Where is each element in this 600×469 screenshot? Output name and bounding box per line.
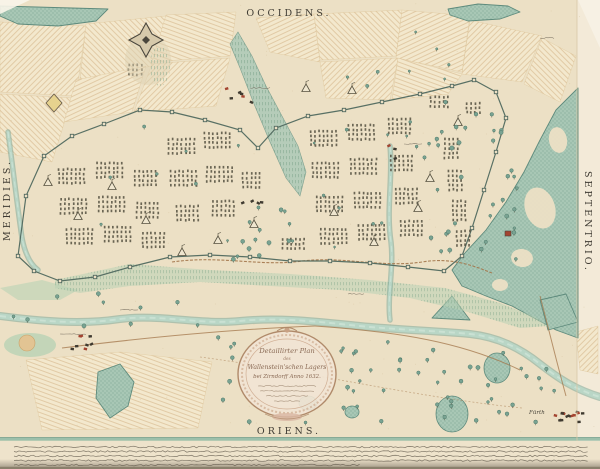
compass-label-west: OCCIDENS. (246, 8, 331, 19)
cartouche-title-line-1: Detaillirter Plan (258, 347, 315, 355)
map-canvas: OCCIDENS. ORIENS. MERIDIES. SEPTENTRIO. … (0, 0, 600, 469)
map-paint-layer (0, 0, 600, 469)
compass-label-north: SEPTENTRIO. (582, 171, 593, 273)
compass-label-east: ORIENS. (257, 426, 321, 437)
place-label-fuerth: Fürth (528, 410, 545, 416)
antique-map-sheet: OCCIDENS. ORIENS. MERIDIES. SEPTENTRIO. … (0, 0, 600, 469)
cartouche-title-line-2: des (283, 356, 290, 361)
cartouche-title-line-3: Wallenstein'schen Lagers (248, 364, 327, 371)
cartouche-title-line-4: bei Zirndorff Anno 1632. (253, 374, 321, 380)
compass-label-south: MERIDIES. (2, 159, 13, 241)
